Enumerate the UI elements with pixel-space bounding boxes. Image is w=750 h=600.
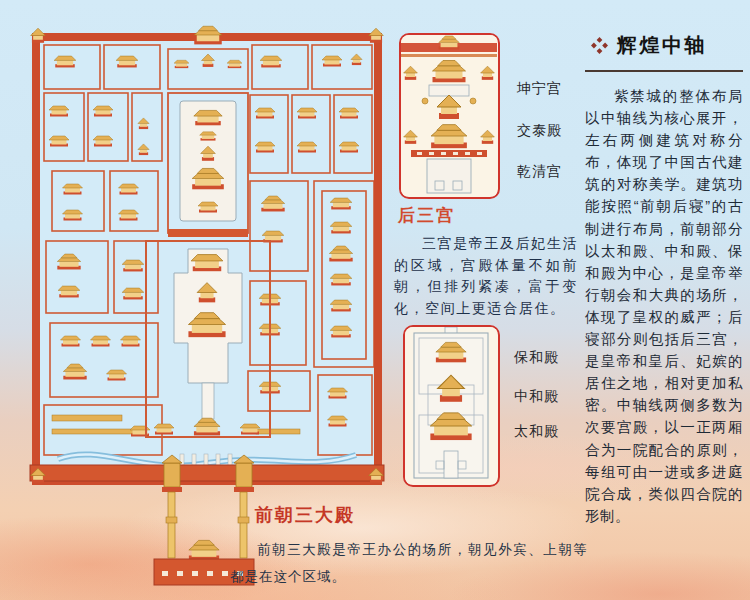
diamond-cluster-icon — [591, 37, 608, 54]
rear-three-palaces — [168, 93, 248, 237]
label-kunninggong: 坤宁宫 — [517, 80, 562, 98]
front-halls-detail-panel — [403, 325, 500, 487]
front-halls-description: 前朝三大殿是帝王办公的场所，朝见外宾、上朝等都是在这个区域。 — [230, 536, 588, 590]
rear-palaces-detail-panel — [399, 33, 500, 199]
sidebar-article: 辉煌中轴 紫禁城的整体布局以中轴线为核心展开，左右两侧建筑对称分布，体现了中国古… — [585, 30, 743, 527]
rear-palaces-panel-illustration — [401, 35, 497, 196]
label-taihedian: 太和殿 — [514, 423, 559, 441]
label-jiaotaidian: 交泰殿 — [517, 122, 562, 140]
north-gate — [194, 26, 222, 44]
sidebar-title: 辉煌中轴 — [617, 32, 707, 59]
sidebar-header: 辉煌中轴 — [585, 30, 743, 72]
front-halls-title: 前朝三大殿 — [255, 503, 355, 527]
sidebar-body-text: 紫禁城的整体布局以中轴线为核心展开，左右两侧建筑对称分布，体现了中国古代建筑的对… — [585, 85, 743, 527]
label-qianqinggong: 乾清宫 — [517, 163, 562, 181]
rear-palaces-title: 后三宫 — [398, 204, 455, 227]
label-zhonghedian: 中和殿 — [514, 388, 559, 406]
label-baohedian: 保和殿 — [514, 349, 559, 367]
front-halls-panel-illustration — [405, 327, 497, 484]
rear-palaces-description: 三宫是帝王及后妃生活的区域，宫殿体量不如前朝，但排列紧凑，富于变化，空间上更适合… — [394, 233, 578, 319]
